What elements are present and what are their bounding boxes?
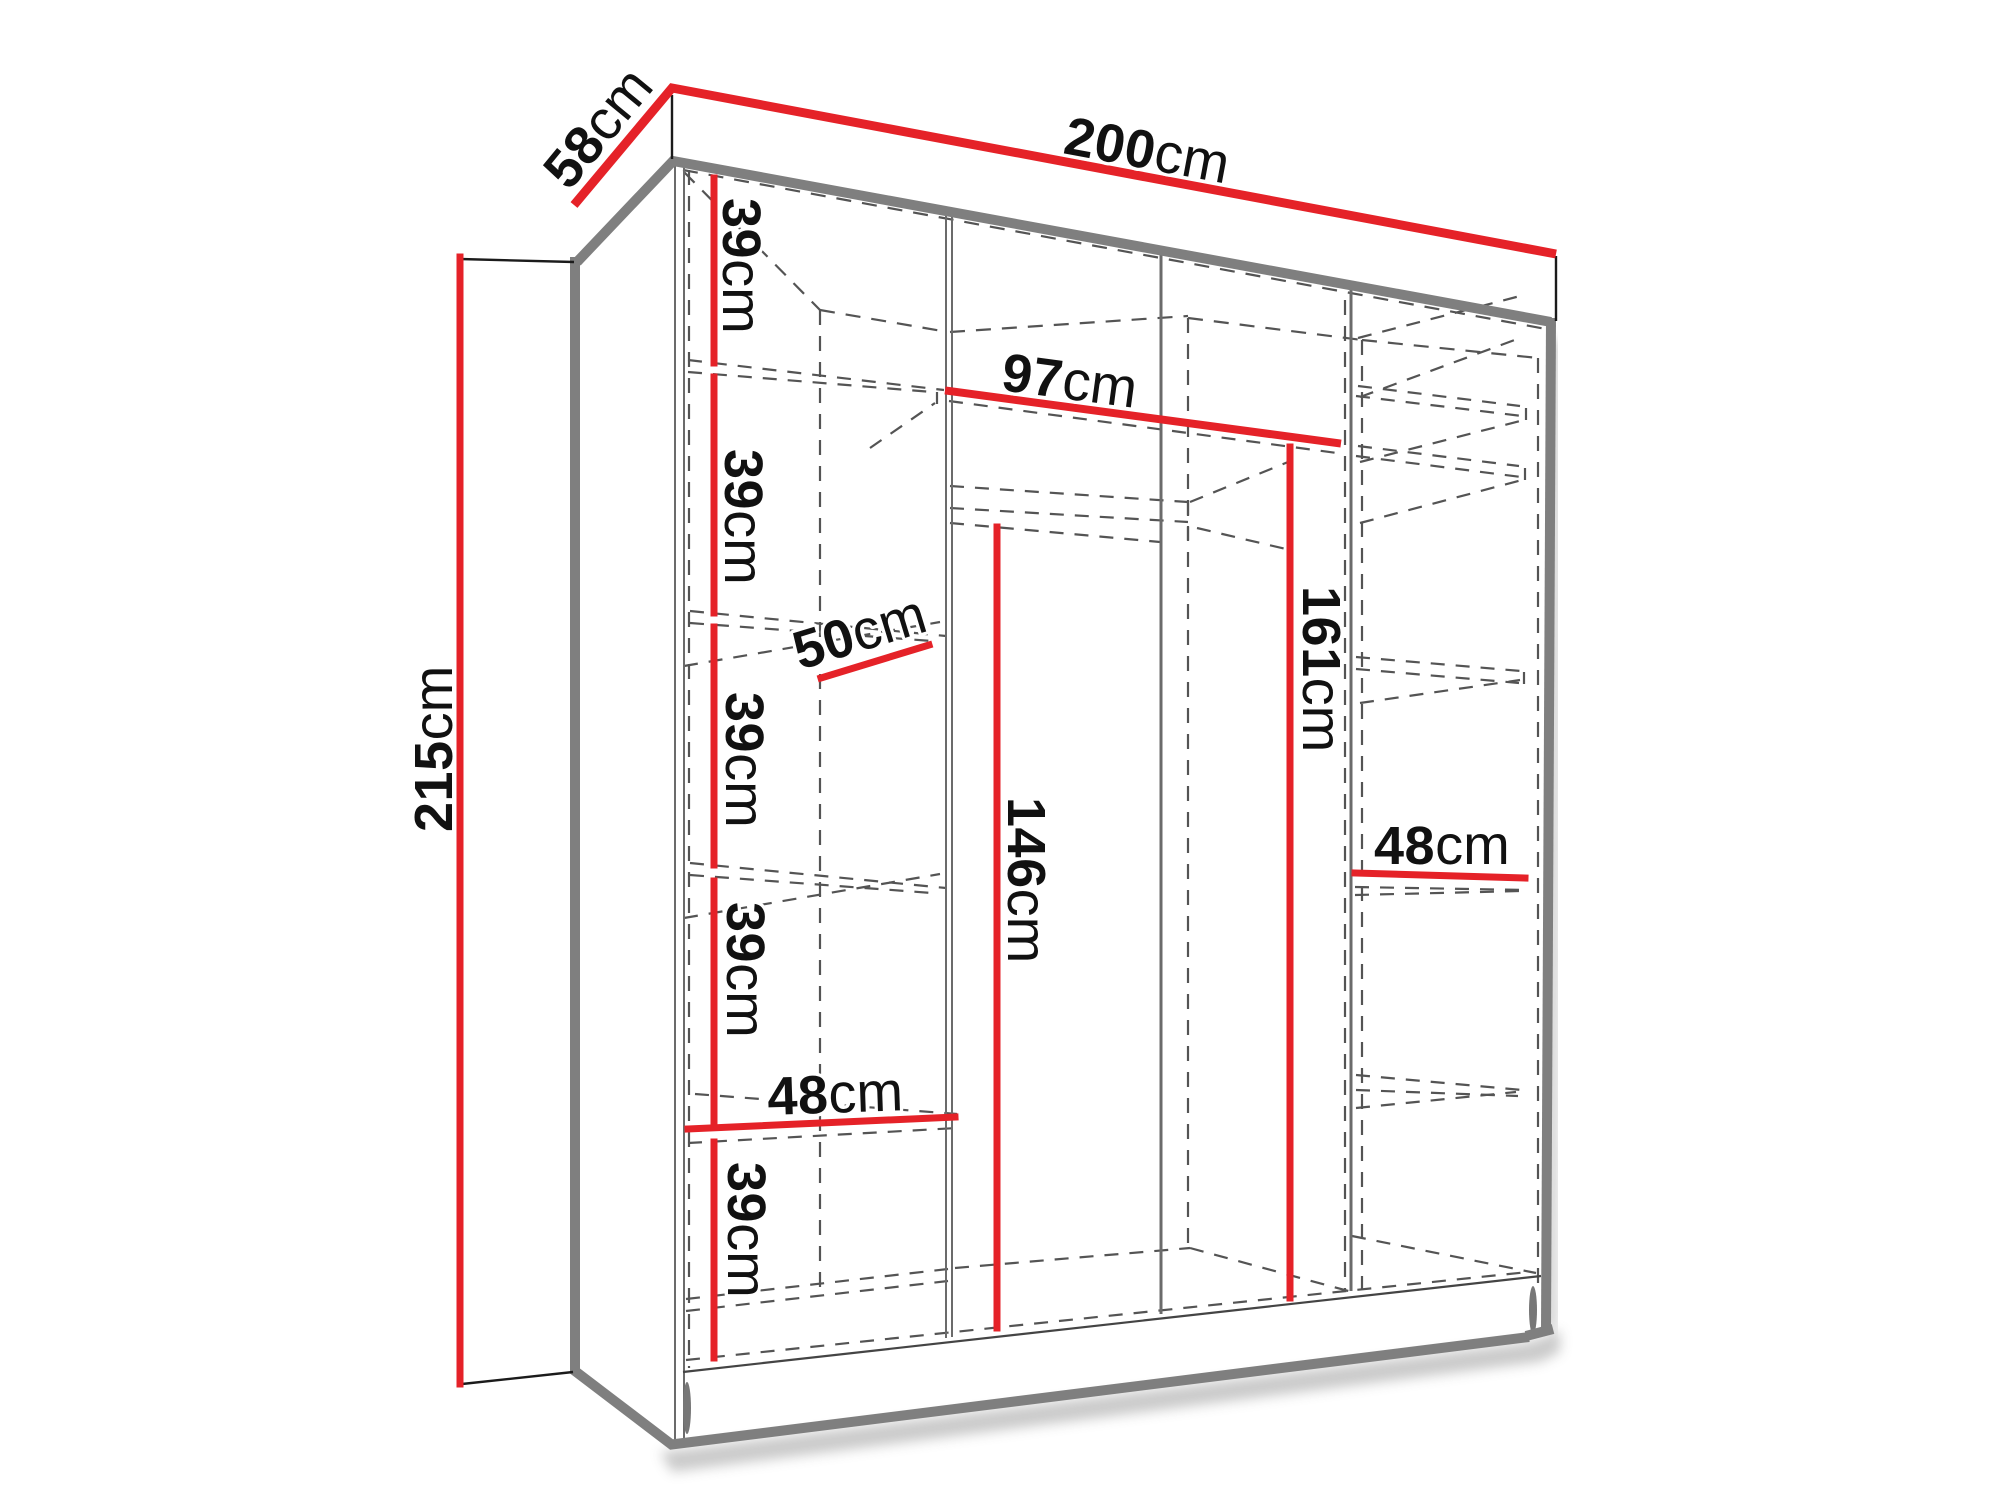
svg-text:48cm: 48cm <box>1374 813 1510 876</box>
svg-text:215cm: 215cm <box>401 666 464 832</box>
svg-text:39cm: 39cm <box>713 449 776 585</box>
svg-text:39cm: 39cm <box>715 902 778 1038</box>
svg-text:39cm: 39cm <box>714 692 777 828</box>
svg-text:39cm: 39cm <box>711 198 774 334</box>
svg-text:146cm: 146cm <box>996 797 1059 963</box>
svg-text:48cm: 48cm <box>766 1059 904 1127</box>
svg-text:39cm: 39cm <box>716 1162 779 1298</box>
svg-text:161cm: 161cm <box>1291 586 1354 752</box>
